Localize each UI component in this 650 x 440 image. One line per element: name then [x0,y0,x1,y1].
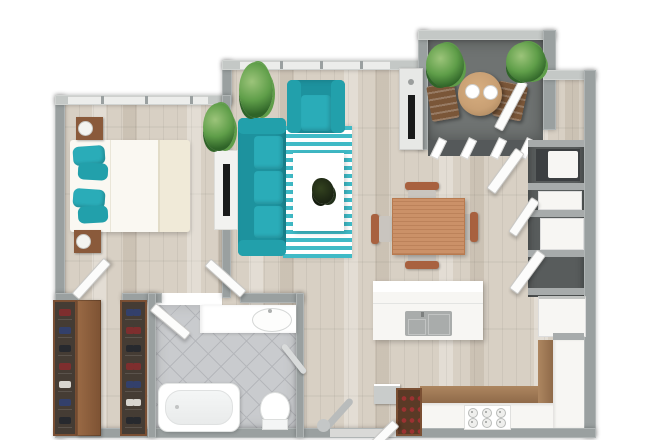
washer-door [548,151,578,178]
dining-chair-back [405,261,439,269]
nightstand [74,230,101,253]
washer-unit [536,149,580,181]
sofa-arm [238,240,286,256]
wall-balcony-top [418,30,556,40]
burner [482,408,492,418]
vanity [200,305,296,333]
window-mullion [145,96,148,104]
shoe-shelf [58,361,72,374]
sofa-cushion [254,136,283,169]
tv-screen [408,95,415,139]
shoe-shelf [58,379,72,392]
burner [482,418,492,428]
island-ledge [373,281,483,292]
balcony-plant-left [426,43,464,87]
shoe-shelf [125,397,142,410]
sofa-cushion [254,171,283,204]
sink-basin [428,314,450,335]
window-mullion [190,96,193,104]
vanity-sink [252,308,292,332]
wine-rack [396,388,422,436]
duvet-fold [158,140,190,232]
closet-shelf-divider [528,140,584,147]
pillow [78,205,109,224]
shoe-rack [53,300,77,436]
balcony-chair-left [426,82,460,122]
shoe-shelf [58,343,72,356]
closet-shelf-divider [528,210,584,217]
pillow [78,162,109,181]
wall-balcony-right [543,30,556,130]
island-sink [405,311,452,336]
decor-paddle-head [317,419,330,432]
counter-backsplash-bottom [420,386,553,403]
sink-basin [408,319,426,335]
closet-shelf-divider [528,183,584,190]
armchair-arm [331,80,345,133]
shoe-shelf [125,379,142,392]
centerpiece-plant [312,178,334,204]
bedroom-tv-stand [214,150,238,230]
sofa-cushion [254,206,283,238]
island-seam [373,303,483,304]
shoe-shelf [125,307,142,320]
dining-table [392,198,465,255]
dining-chair-seat [379,216,392,242]
window-mullion [101,96,104,104]
sofa-arm [238,118,286,134]
burner [468,408,478,418]
tv-screen [223,164,230,216]
sink-faucet [421,312,424,317]
shoe-shelf [58,325,72,338]
wall-bath-top [240,293,304,303]
nightstand [76,117,103,140]
shoe-rack [120,300,147,436]
shoe-shelf [125,361,142,374]
fridge [538,296,586,337]
armchair-arm [287,80,301,133]
dining-chair-back [470,212,478,242]
lamp [76,234,91,249]
kitchen-counter-right [553,340,584,428]
wardrobe [77,300,101,436]
bedroom-window [68,96,208,104]
bedroom-plant [203,103,235,151]
shoe-shelf [125,343,142,356]
shoe-shelf [58,397,72,410]
burner [468,418,478,428]
sofa [238,118,286,256]
balcony-plant-right [506,42,546,82]
window-mullion [320,61,323,69]
bathtub [158,383,240,432]
burner [496,408,506,418]
counter-backsplash-right [538,340,553,403]
dining-chair-back [405,182,439,190]
lamp [78,121,93,136]
window-mullion [280,61,283,69]
armchair [287,80,345,133]
burner [496,418,506,428]
shoe-shelf [58,415,72,428]
dining-chair-back [371,214,379,244]
armchair-cushion [301,95,331,131]
closet-shelf-divider [528,288,584,295]
sliding-door-track [428,140,543,156]
counter-divider [553,333,584,340]
wall-right [584,70,596,438]
shoe-shelf [125,415,142,428]
window-mullion [360,61,363,69]
tv-console [399,68,423,150]
shoe-shelf [125,325,142,338]
floorplan-canvas [0,0,650,440]
closet-appliance [538,191,582,210]
shoe-shelf [58,307,72,320]
stove [464,405,511,430]
vanity-faucet [268,309,272,313]
sheet-line [110,140,111,232]
plate [483,85,498,100]
toilet-tank [262,419,288,430]
plate [465,84,480,99]
bathtub-drain [175,405,179,409]
closet-appliance [540,218,584,250]
tv-decor [408,79,414,85]
living-plant [239,62,273,118]
